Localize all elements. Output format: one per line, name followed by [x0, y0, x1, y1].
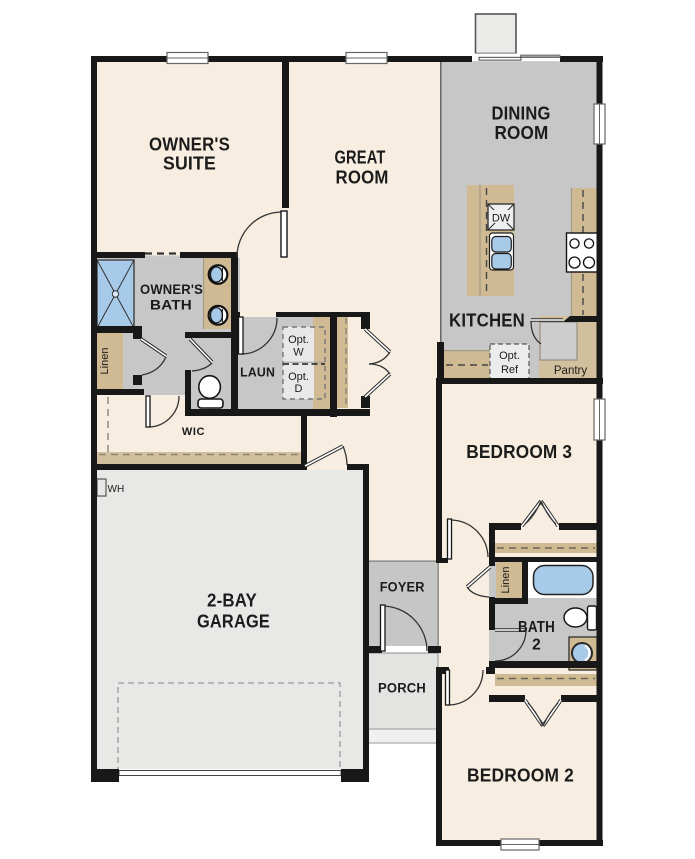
svg-text:PORCH: PORCH [378, 681, 426, 696]
svg-text:DW: DW [492, 213, 511, 225]
svg-text:D: D [295, 383, 303, 395]
svg-text:LAUN: LAUN [240, 365, 275, 380]
svg-text:GREAT: GREAT [335, 148, 386, 168]
svg-text:FOYER: FOYER [380, 580, 425, 595]
svg-text:BATH: BATH [518, 619, 555, 636]
svg-text:OWNER'S: OWNER'S [149, 135, 230, 155]
svg-text:SUITE: SUITE [163, 154, 216, 174]
svg-text:BEDROOM 3: BEDROOM 3 [466, 442, 572, 462]
svg-text:Pantry: Pantry [554, 365, 587, 377]
svg-text:W: W [293, 347, 304, 359]
svg-text:OWNER'S: OWNER'S [140, 281, 203, 297]
svg-text:KITCHEN: KITCHEN [449, 311, 525, 331]
svg-text:BEDROOM 2: BEDROOM 2 [467, 766, 574, 786]
svg-text:Opt.: Opt. [288, 371, 309, 383]
svg-text:Linen: Linen [500, 567, 512, 594]
svg-text:Ref: Ref [501, 364, 519, 376]
svg-text:ROOM: ROOM [336, 168, 389, 188]
svg-text:Linen: Linen [99, 348, 111, 375]
svg-text:2: 2 [532, 637, 541, 654]
svg-text:Opt.: Opt. [288, 334, 309, 346]
svg-text:GARAGE: GARAGE [197, 611, 270, 631]
svg-text:WIC: WIC [182, 426, 205, 438]
svg-text:ROOM: ROOM [495, 123, 549, 143]
svg-text:2-BAY: 2-BAY [207, 591, 257, 611]
svg-text:Opt.: Opt. [499, 350, 520, 362]
svg-text:BATH: BATH [150, 297, 192, 313]
svg-text:WH: WH [108, 484, 125, 495]
svg-text:DINING: DINING [492, 104, 551, 124]
